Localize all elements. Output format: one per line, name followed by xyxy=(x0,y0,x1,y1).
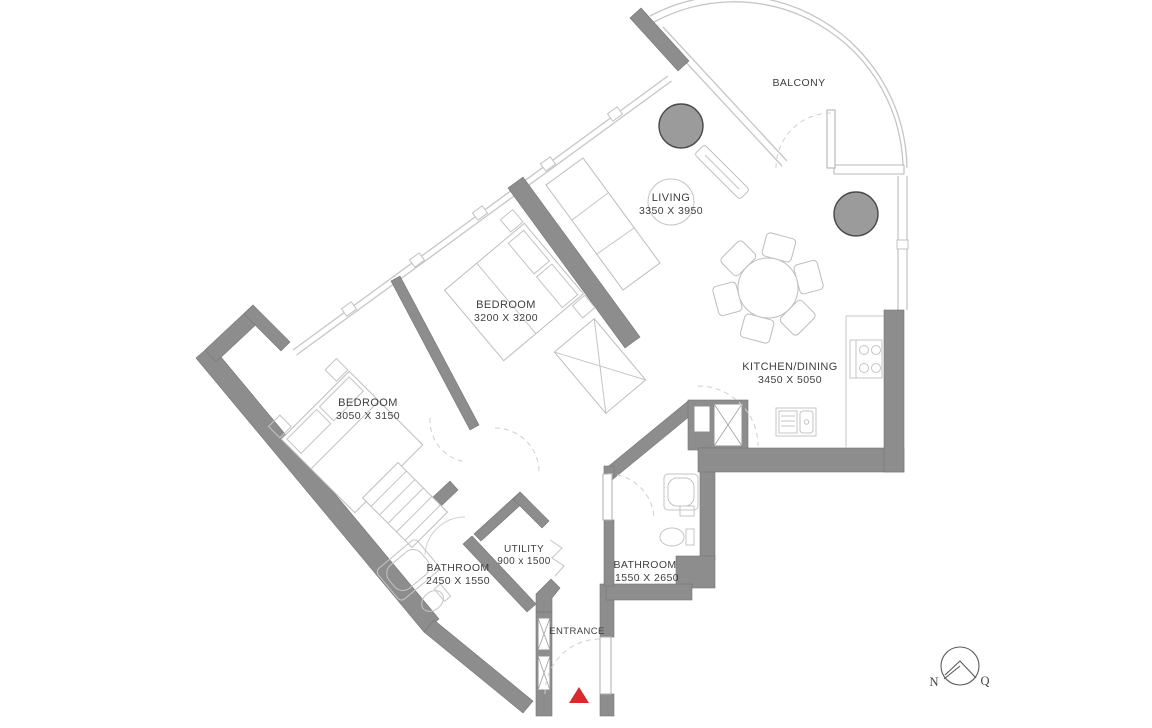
balcony-window-sill xyxy=(834,165,904,174)
room-label-bathroom2: BATHROOM xyxy=(613,559,676,571)
bathtub xyxy=(664,474,698,510)
room-label-utility: UTILITY xyxy=(504,544,544,555)
bathroom2-door-leaf xyxy=(603,474,612,520)
wall-corridor-connector xyxy=(536,579,560,612)
room-dims-bedroom2: 3050 X 3150 xyxy=(336,410,400,422)
wall-bathroom2-bottom xyxy=(606,584,692,600)
room-dims-bathroom2: 1550 X 2650 xyxy=(615,572,679,584)
wall-bathroom2-left-lower xyxy=(604,520,614,586)
room-label-balcony: BALCONY xyxy=(773,77,826,89)
room-dims-kitchen: 3450 X 5050 xyxy=(758,374,822,386)
utility-folding-door xyxy=(550,540,564,576)
room-dims-utility: 900 x 1500 xyxy=(497,556,551,567)
room-label-bedroom1: BEDROOM xyxy=(476,299,536,311)
wall-bathroom2-notch xyxy=(676,556,715,588)
compass-q-label: Q xyxy=(980,674,989,688)
wall-utility-b xyxy=(513,492,549,528)
entrance-door-leaf xyxy=(600,637,611,694)
hallway-door-swing xyxy=(495,428,539,472)
wall-bathroom1-exterior xyxy=(424,620,533,713)
bathroom2-door-swing xyxy=(608,474,654,520)
toilet xyxy=(660,528,684,546)
room-label-living: LIVING xyxy=(652,192,690,204)
wall-entrance-diagonal xyxy=(604,401,696,480)
balcony-door-leaf xyxy=(827,110,835,168)
washbasin xyxy=(680,506,694,516)
wall-kitchen-bottom xyxy=(698,448,904,472)
compass: N Q xyxy=(929,647,989,689)
room-label-entrance: ENTRANCE xyxy=(549,626,604,637)
room-dims-bedroom1: 3200 X 3200 xyxy=(474,312,538,324)
doors xyxy=(425,110,835,694)
kitchen-right-window xyxy=(897,176,908,310)
entrance-marker xyxy=(569,687,589,703)
room-dims-living: 3350 X 3950 xyxy=(639,205,703,217)
room-label-kitchen: KITCHEN/DINING xyxy=(742,361,837,373)
tv-console xyxy=(694,144,749,199)
balcony-door-swing xyxy=(776,113,831,168)
floor-plan-drawing: BALCONY LIVING 3350 X 3950 BEDROOM 3200 … xyxy=(0,0,1152,728)
entrance-door-swing xyxy=(545,639,600,694)
compass-needle xyxy=(945,661,976,678)
room-dims-bathroom1: 2450 X 1550 xyxy=(426,575,490,587)
wall-corridor-right-stub xyxy=(600,694,614,716)
wall-top-stub xyxy=(630,8,689,71)
compass-north-label: N xyxy=(929,675,938,689)
bathroom2-fixtures xyxy=(660,474,698,546)
kitchen-sink xyxy=(776,408,816,436)
room-label-bedroom2: BEDROOM xyxy=(338,397,398,409)
dining-set xyxy=(712,232,824,344)
room-label-bathroom1: BATHROOM xyxy=(426,562,489,574)
wall-kitchen-right xyxy=(884,310,904,472)
floor-plan-page: BALCONY LIVING 3350 X 3950 BEDROOM 3200 … xyxy=(0,0,1152,728)
bedroom2-door-swing xyxy=(430,418,466,462)
column xyxy=(659,104,703,148)
stove xyxy=(850,340,882,378)
dining-table xyxy=(738,258,798,318)
column xyxy=(834,192,878,236)
